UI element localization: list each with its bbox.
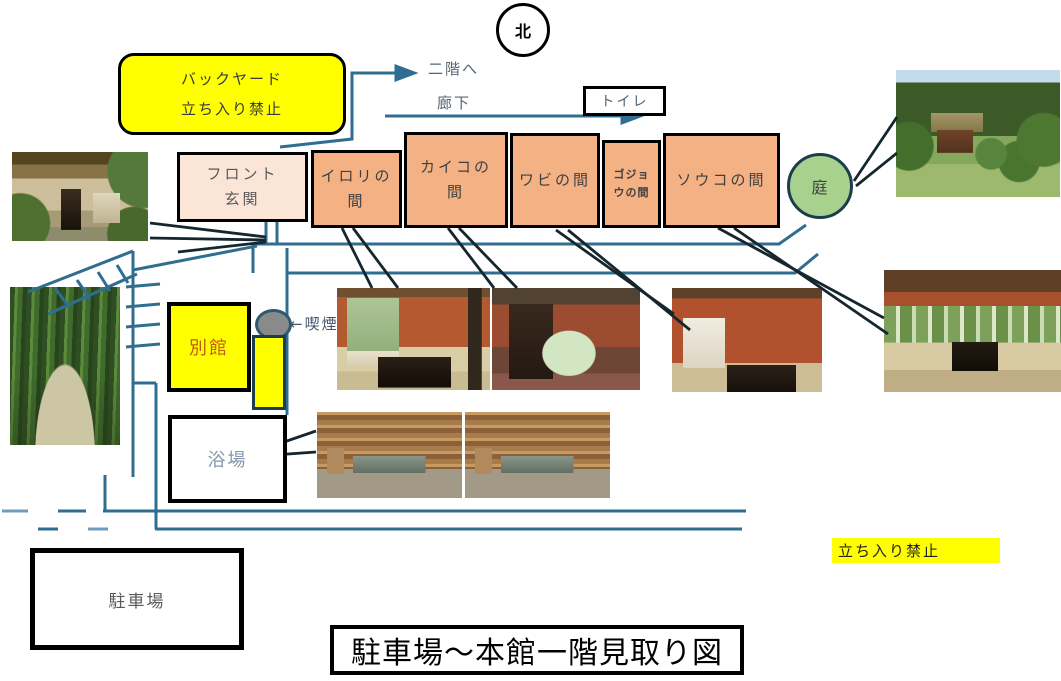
wabi-room-photo [672,288,822,392]
floor-plan-diagram: 北 バックヤード 立ち入り禁止 二階へ 廊下 トイレ フロント 玄関 イロリの … [0,0,1061,681]
backyard-sign-line2: 立ち入り禁止 [181,94,283,124]
room-souko: ソウコの間 [663,133,780,228]
corridor-label: 廊下 [437,92,471,113]
room-gojou: ゴジョ ウの間 [602,140,661,228]
souko-room-photo [884,270,1061,392]
bamboo-path-photo [10,287,120,445]
irori-room-photo [337,288,490,390]
garden-label: 庭 [811,174,828,198]
smoking-booth-box [252,335,286,410]
entrance-photo [12,152,148,241]
to-second-floor-label: 二階へ [428,58,479,79]
bath-photo-2 [465,412,610,498]
room-label: 間 [347,189,365,215]
room-label: フロント [206,162,278,188]
parking-lot-box: 駐車場 [30,548,244,650]
bath-house-box: 浴場 [168,415,287,503]
garden-pointer-lines [854,117,897,186]
annex-label: 別館 [189,334,229,360]
toilet-box: トイレ [583,86,666,116]
bath-photo-1 [317,412,462,498]
garden-photo [896,70,1060,197]
room-label: 玄関 [224,187,260,213]
compass-north: 北 [496,3,550,57]
garden-circle: 庭 [787,153,853,219]
room-label: ソウコの間 [676,168,766,194]
backyard-sign-line1: バックヤード [181,64,283,94]
bath-house-label: 浴場 [208,446,248,472]
room-front-entrance: フロント 玄関 [177,152,308,222]
room-label: 間 [447,180,465,206]
room-label: ゴジョ [614,166,650,184]
parking-lot-label: 駐車場 [109,587,166,612]
dining-room-photo [492,288,640,390]
room-label: カイコの [420,155,492,181]
smoking-label: ←喫煙 [290,313,339,334]
backyard-no-entry-sign: バックヤード 立ち入り禁止 [118,53,346,135]
compass-label: 北 [515,18,531,42]
diagram-title-text: 駐車場～本館一階見取り図 [351,628,723,672]
room-irori: イロリの 間 [311,150,402,228]
room-label: ワビの間 [519,168,591,194]
room-label: イロリの [320,164,392,190]
room-wabi: ワビの間 [510,133,600,228]
road-lines [2,511,746,529]
no-entry-note: 立ち入り禁止 [832,538,1000,563]
diagram-title: 駐車場～本館一階見取り図 [330,625,744,675]
room-kaiko: カイコの 間 [404,132,508,228]
annex-box: 別館 [167,302,251,392]
toilet-label: トイレ [601,91,649,111]
room-label: ウの間 [614,184,650,202]
